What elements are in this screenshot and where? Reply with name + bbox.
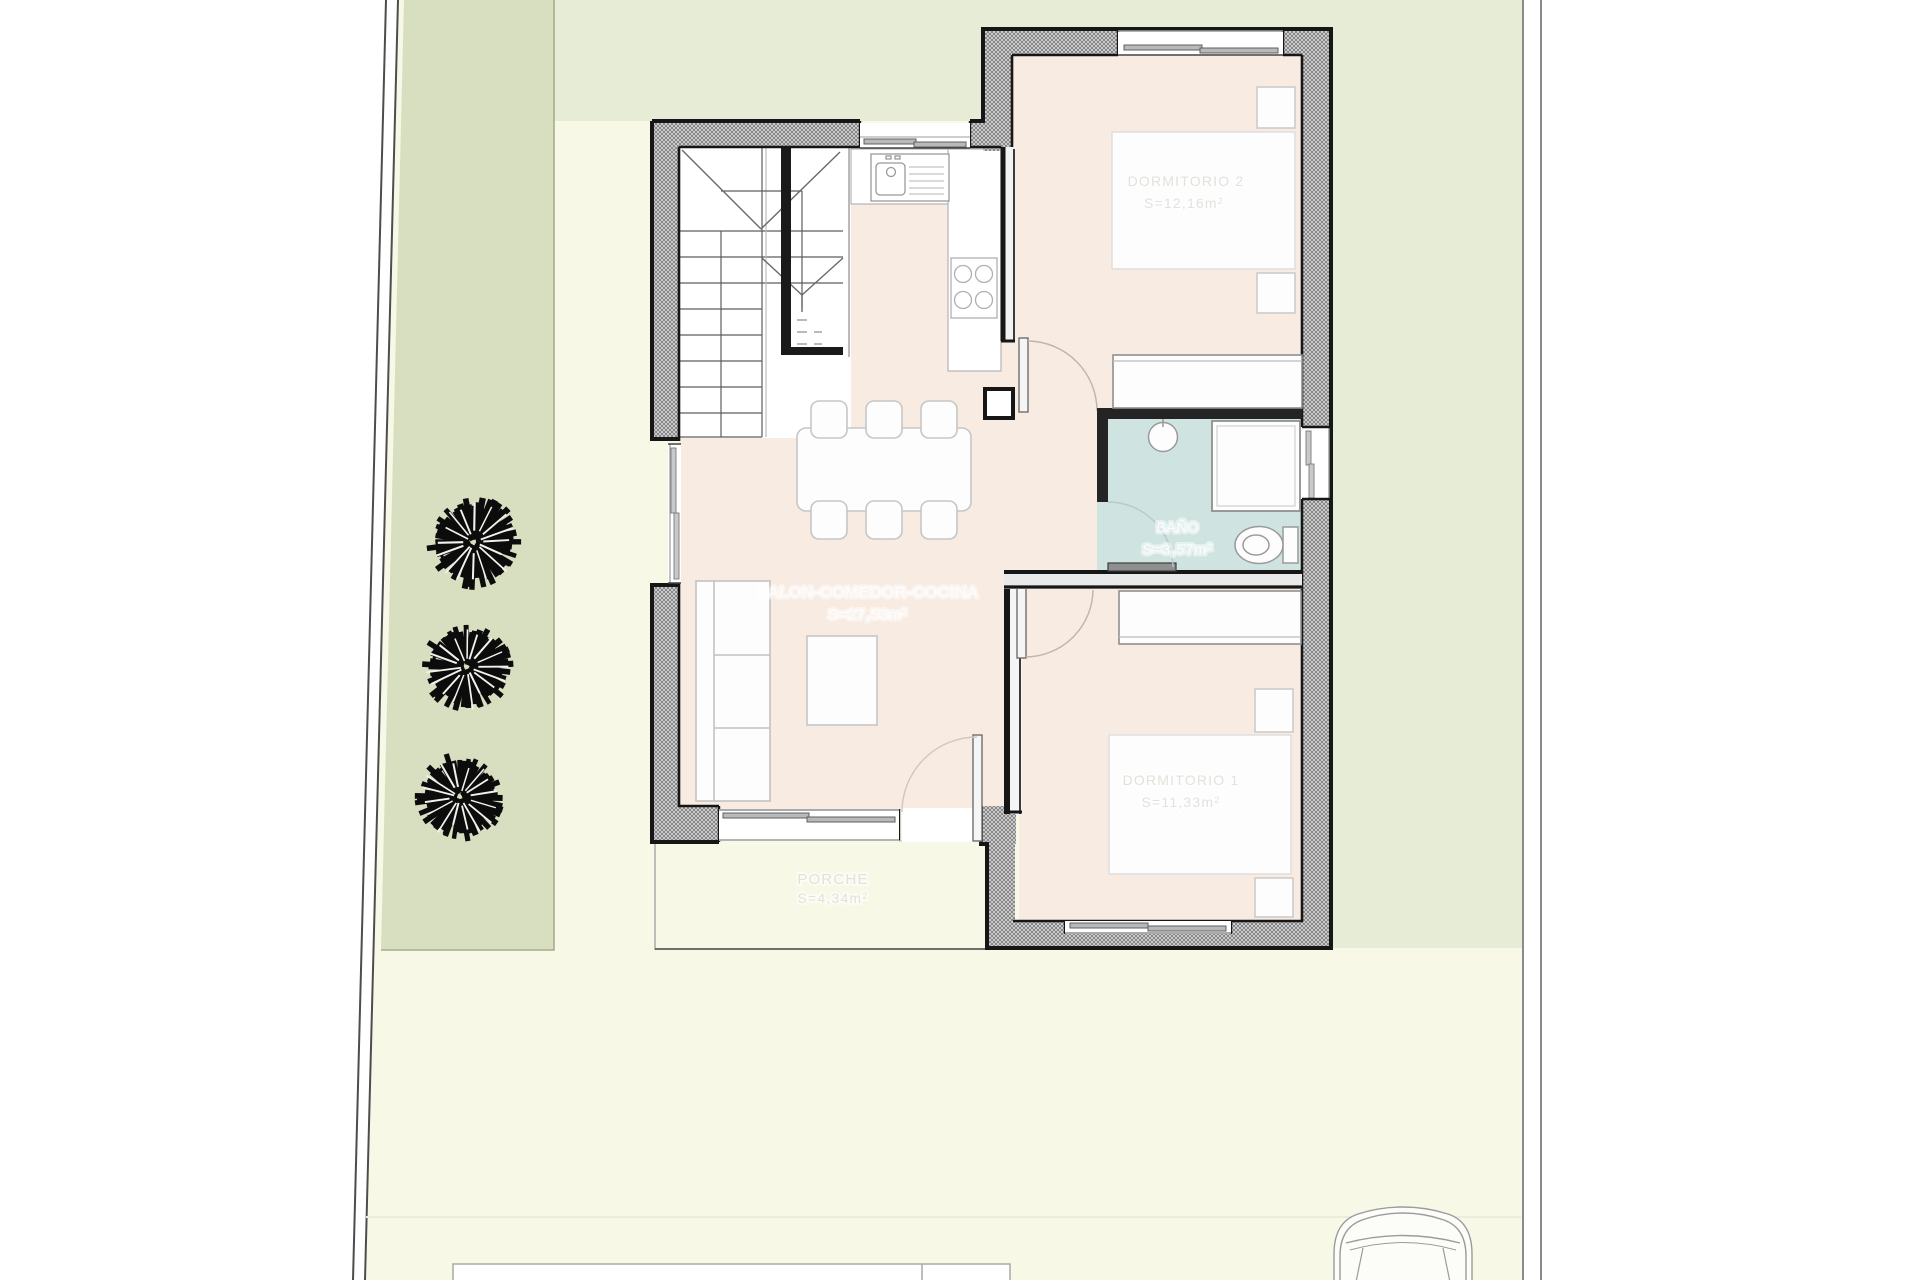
- svg-text:S=27,53m2: S=27,53m2: [828, 606, 908, 622]
- svg-text:DORMITORIO 1: DORMITORIO 1: [1123, 772, 1240, 788]
- svg-text:PORCHE: PORCHE: [797, 871, 868, 888]
- svg-text:SALON-COMEDOR-COCINA: SALON-COMEDOR-COCINA: [757, 584, 979, 601]
- svg-text:S=11,33m2: S=11,33m2: [1142, 794, 1221, 810]
- svg-text:S=12,16m2: S=12,16m2: [1144, 195, 1224, 211]
- svg-text:DORMITORIO 2: DORMITORIO 2: [1128, 173, 1245, 189]
- svg-text:BAÑO: BAÑO: [1156, 520, 1199, 535]
- svg-text:S=4,34m2: S=4,34m2: [797, 890, 868, 906]
- svg-text:S=3,57m2: S=3,57m2: [1142, 541, 1213, 557]
